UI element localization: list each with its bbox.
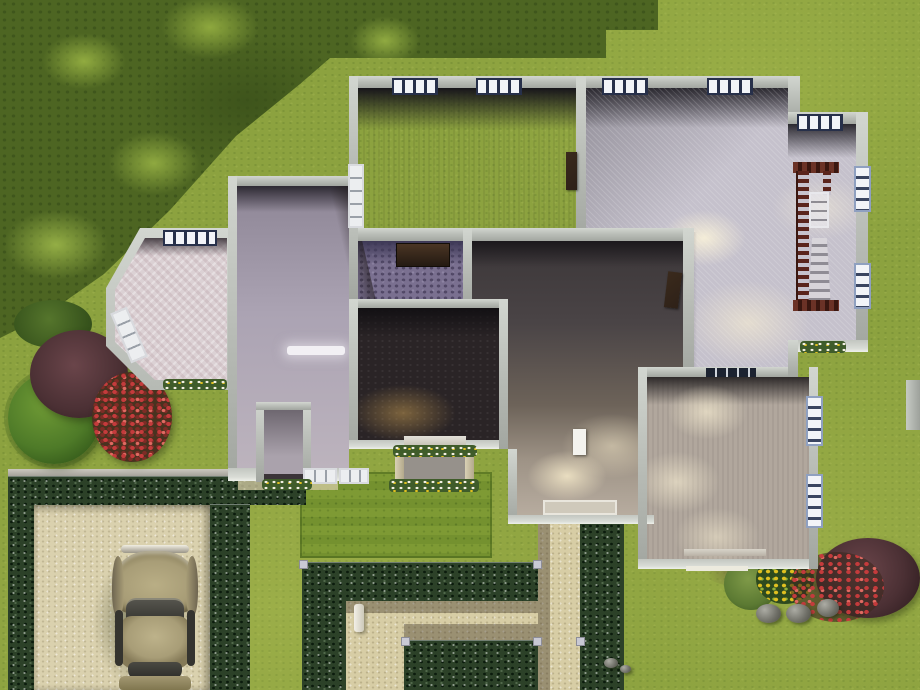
window-foyer-south-2[interactable] bbox=[339, 468, 369, 484]
fence-post bbox=[533, 560, 542, 569]
car-fender-east bbox=[186, 556, 198, 616]
rock[interactable] bbox=[817, 599, 839, 617]
vestibule-wall-west[interactable] bbox=[256, 402, 264, 482]
hedge-column-driveway-east[interactable] bbox=[210, 504, 250, 690]
gray-object-right-edge[interactable] bbox=[906, 380, 920, 430]
trellis-flowers-south bbox=[389, 479, 479, 492]
pebble[interactable] bbox=[620, 665, 631, 673]
wall-bedroom-divider[interactable] bbox=[576, 76, 586, 241]
fence-post bbox=[401, 637, 410, 646]
rock[interactable] bbox=[756, 604, 781, 623]
window-bedroom-se-east-2[interactable] bbox=[806, 474, 823, 528]
car-window-side-east bbox=[187, 610, 195, 666]
room-bedroom-se[interactable] bbox=[647, 377, 809, 559]
trellis-arbor[interactable] bbox=[389, 434, 479, 494]
hedge-shadow bbox=[346, 600, 538, 613]
hedge-garden-north[interactable] bbox=[302, 562, 538, 601]
fence-post bbox=[533, 637, 542, 646]
wall-den-north[interactable] bbox=[349, 299, 508, 308]
window-living-1[interactable] bbox=[602, 78, 648, 95]
car-window-side-west bbox=[115, 610, 123, 666]
stair-rail-bottom bbox=[793, 300, 839, 311]
window-notch[interactable] bbox=[797, 114, 843, 131]
wall-hall-east[interactable] bbox=[683, 228, 694, 375]
room-dark-den[interactable] bbox=[358, 308, 499, 440]
trellis-flowers-north bbox=[393, 445, 477, 457]
window-living-2[interactable] bbox=[707, 78, 753, 95]
window-bedroom-nw-1[interactable] bbox=[392, 78, 438, 95]
hedge-garden-inner[interactable] bbox=[404, 640, 538, 690]
flowerbed-wing-south[interactable] bbox=[800, 341, 846, 353]
staircase[interactable] bbox=[793, 162, 839, 314]
wall-hall-north[interactable] bbox=[349, 228, 694, 241]
flowerbed-front-door[interactable] bbox=[262, 479, 312, 490]
car[interactable] bbox=[112, 544, 198, 690]
window-bedroom-nw-2[interactable] bbox=[476, 78, 522, 95]
window-bedroom-se-north-dark[interactable] bbox=[706, 368, 756, 377]
stair-rail-west bbox=[796, 171, 809, 311]
window-living-east-1[interactable] bbox=[854, 166, 871, 212]
flowerbed-bay[interactable] bbox=[163, 379, 227, 390]
door-bedroom-divider[interactable] bbox=[566, 152, 577, 190]
dresser[interactable] bbox=[396, 243, 450, 267]
porch-door-white[interactable] bbox=[573, 429, 586, 455]
fence-post bbox=[299, 560, 308, 569]
ceiling-light-bar[interactable] bbox=[287, 346, 345, 355]
hedge-shadow bbox=[404, 624, 538, 640]
stair-void-window[interactable] bbox=[809, 192, 829, 228]
wall-den-east[interactable] bbox=[499, 299, 508, 449]
wall-foyer-north[interactable] bbox=[228, 176, 359, 186]
wall-east[interactable] bbox=[856, 112, 868, 352]
floor-step-strip bbox=[684, 549, 766, 556]
window-bedroom-se-east-1[interactable] bbox=[806, 396, 823, 446]
car-roof bbox=[120, 616, 190, 668]
hedge-column-west[interactable] bbox=[8, 476, 34, 690]
wall-connector[interactable] bbox=[788, 340, 798, 377]
window-bay-north[interactable] bbox=[163, 230, 217, 246]
car-fender-west bbox=[112, 556, 124, 616]
wall-bedroom-se-west[interactable] bbox=[638, 367, 647, 568]
wall-den-west[interactable] bbox=[349, 299, 358, 449]
garden-ornament[interactable] bbox=[354, 604, 364, 632]
wall-bath-east[interactable] bbox=[463, 228, 472, 308]
wall-porch-west[interactable] bbox=[508, 449, 517, 524]
fence-post bbox=[576, 637, 585, 646]
trellis-floor bbox=[404, 457, 465, 479]
room-bedroom-nw[interactable] bbox=[358, 88, 576, 228]
wall-porch-south[interactable] bbox=[508, 515, 654, 524]
car-trunk bbox=[119, 676, 191, 690]
lot-overview bbox=[0, 0, 920, 690]
pebble[interactable] bbox=[604, 658, 618, 668]
vestibule-floor[interactable] bbox=[264, 410, 303, 476]
wall-foyer-west[interactable] bbox=[228, 176, 237, 481]
porch-step[interactable] bbox=[543, 500, 617, 515]
window-bedroom-nw-west[interactable] bbox=[348, 164, 364, 228]
hedge-shadow bbox=[538, 516, 550, 690]
rock[interactable] bbox=[786, 604, 811, 623]
bedroom-se-step[interactable] bbox=[686, 566, 748, 571]
walkway-lower[interactable] bbox=[346, 640, 404, 690]
vestibule-wall-north[interactable] bbox=[256, 402, 311, 410]
window-living-east-2[interactable] bbox=[854, 263, 871, 309]
